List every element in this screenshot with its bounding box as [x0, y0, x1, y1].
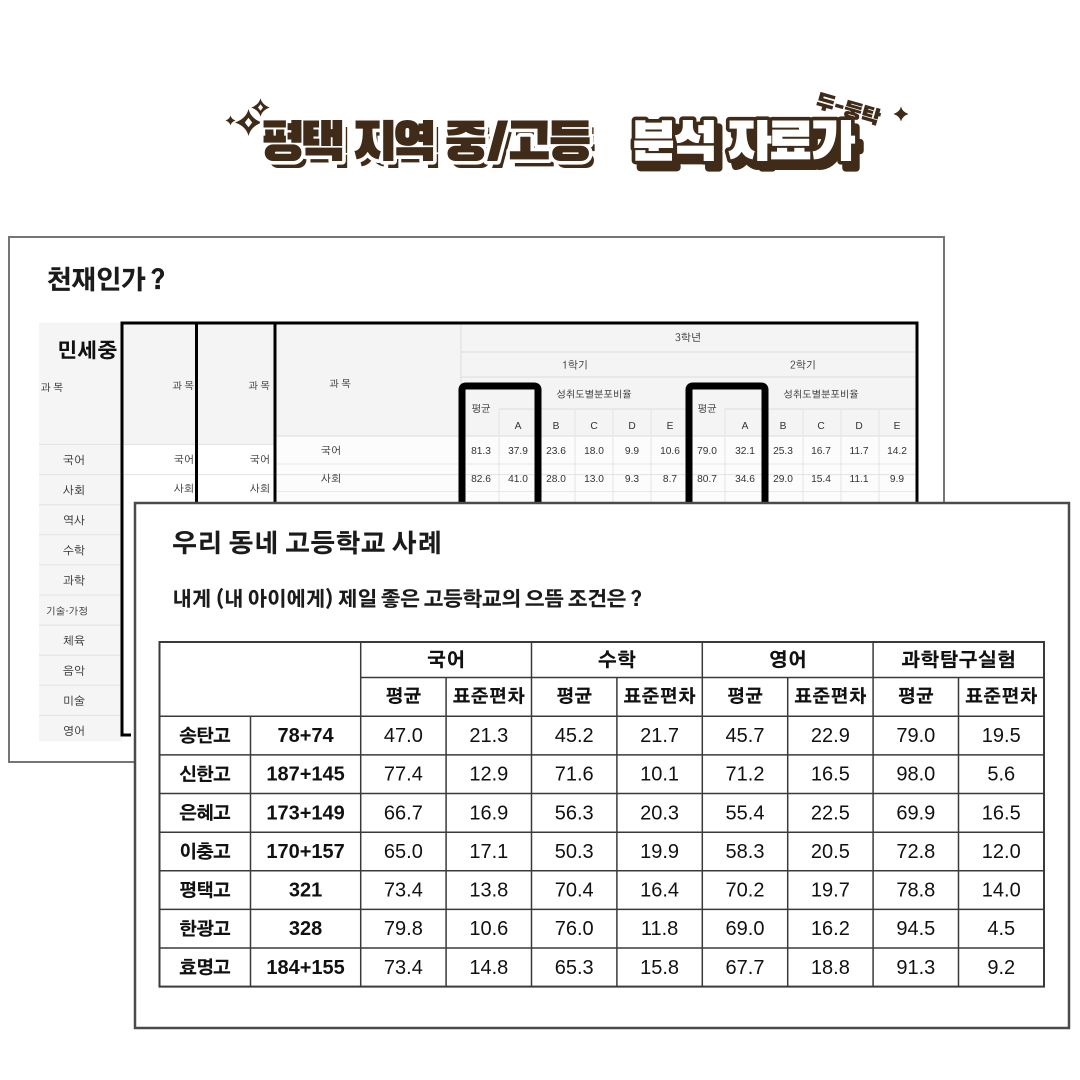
svg-text:50.3: 50.3 — [555, 841, 594, 863]
svg-text:16.9: 16.9 — [469, 802, 508, 824]
svg-text:C: C — [817, 421, 824, 432]
svg-text:9.2: 9.2 — [987, 957, 1015, 979]
svg-text:9.9: 9.9 — [890, 474, 904, 485]
svg-text:187+145: 187+145 — [266, 764, 344, 786]
svg-text:D: D — [855, 421, 862, 432]
svg-text:91.3: 91.3 — [896, 957, 935, 979]
svg-text:22.5: 22.5 — [811, 802, 850, 824]
svg-text:66.7: 66.7 — [384, 802, 423, 824]
svg-text:15.8: 15.8 — [640, 957, 679, 979]
svg-text:21.3: 21.3 — [469, 725, 508, 747]
svg-text:18.8: 18.8 — [811, 957, 850, 979]
svg-text:23.6: 23.6 — [546, 446, 566, 457]
svg-text:B: B — [553, 421, 560, 432]
svg-text:17.1: 17.1 — [469, 841, 508, 863]
svg-text:16.7: 16.7 — [811, 446, 831, 457]
svg-text:71.6: 71.6 — [555, 764, 594, 786]
svg-text:82.6: 82.6 — [471, 474, 491, 485]
svg-text:14.0: 14.0 — [982, 880, 1021, 902]
svg-text:15.4: 15.4 — [811, 474, 831, 485]
svg-text:170+157: 170+157 — [266, 841, 344, 863]
svg-text:328: 328 — [289, 918, 322, 940]
svg-text:12.9: 12.9 — [469, 764, 508, 786]
svg-text:98.0: 98.0 — [896, 764, 935, 786]
svg-text:78.8: 78.8 — [896, 880, 935, 902]
svg-text:73.4: 73.4 — [384, 880, 423, 902]
svg-text:16.5: 16.5 — [982, 802, 1021, 824]
svg-text:19.5: 19.5 — [982, 725, 1021, 747]
svg-text:9.3: 9.3 — [625, 474, 639, 485]
svg-text:70.2: 70.2 — [726, 880, 765, 902]
svg-text:16.5: 16.5 — [811, 764, 850, 786]
svg-text:E: E — [667, 421, 674, 432]
svg-text:45.2: 45.2 — [555, 725, 594, 747]
svg-text:321: 321 — [289, 880, 322, 902]
svg-text:80.7: 80.7 — [697, 474, 717, 485]
svg-text:29.0: 29.0 — [773, 474, 793, 485]
svg-text:37.9: 37.9 — [508, 446, 528, 457]
svg-text:55.4: 55.4 — [726, 802, 765, 824]
svg-text:79.0: 79.0 — [896, 725, 935, 747]
svg-text:E: E — [894, 421, 901, 432]
svg-text:A: A — [515, 421, 522, 432]
svg-text:C: C — [590, 421, 597, 432]
svg-text:56.3: 56.3 — [555, 802, 594, 824]
svg-text:78+74: 78+74 — [278, 725, 335, 747]
svg-text:173+149: 173+149 — [266, 802, 344, 824]
svg-text:11.7: 11.7 — [849, 446, 868, 457]
svg-text:41.0: 41.0 — [508, 474, 528, 485]
svg-text:4.5: 4.5 — [987, 918, 1015, 940]
svg-text:32.1: 32.1 — [735, 446, 755, 457]
svg-text:21.7: 21.7 — [640, 725, 679, 747]
svg-text:45.7: 45.7 — [726, 725, 765, 747]
svg-text:D: D — [628, 421, 635, 432]
svg-text:10.6: 10.6 — [660, 446, 680, 457]
svg-text:10.1: 10.1 — [640, 764, 679, 786]
svg-text:11.8: 11.8 — [641, 918, 678, 940]
svg-text:69.9: 69.9 — [896, 802, 935, 824]
svg-text:79.0: 79.0 — [697, 446, 717, 457]
svg-text:14.8: 14.8 — [469, 957, 508, 979]
svg-text:22.9: 22.9 — [811, 725, 850, 747]
svg-text:58.3: 58.3 — [726, 841, 765, 863]
svg-text:13.0: 13.0 — [584, 474, 604, 485]
svg-text:B: B — [780, 421, 787, 432]
svg-text:184+155: 184+155 — [266, 957, 344, 979]
svg-text:69.0: 69.0 — [726, 918, 765, 940]
svg-text:20.3: 20.3 — [640, 802, 679, 824]
svg-text:34.6: 34.6 — [735, 474, 755, 485]
svg-text:19.7: 19.7 — [811, 880, 850, 902]
svg-text:67.7: 67.7 — [726, 957, 765, 979]
svg-text:65.0: 65.0 — [384, 841, 423, 863]
svg-text:77.4: 77.4 — [384, 764, 423, 786]
svg-text:20.5: 20.5 — [811, 841, 850, 863]
svg-text:94.5: 94.5 — [896, 918, 935, 940]
svg-text:25.3: 25.3 — [773, 446, 793, 457]
svg-text:73.4: 73.4 — [384, 957, 423, 979]
svg-text:12.0: 12.0 — [982, 841, 1021, 863]
svg-text:81.3: 81.3 — [471, 446, 491, 457]
svg-text:8.7: 8.7 — [663, 474, 677, 485]
svg-text:79.8: 79.8 — [384, 918, 423, 940]
svg-text:47.0: 47.0 — [384, 725, 423, 747]
svg-text:A: A — [742, 421, 749, 432]
svg-text:16.4: 16.4 — [640, 880, 679, 902]
svg-text:9.9: 9.9 — [625, 446, 639, 457]
svg-text:13.8: 13.8 — [469, 880, 508, 902]
svg-text:65.3: 65.3 — [555, 957, 594, 979]
svg-text:11.1: 11.1 — [849, 474, 868, 485]
svg-text:19.9: 19.9 — [640, 841, 679, 863]
svg-text:72.8: 72.8 — [896, 841, 935, 863]
svg-text:5.6: 5.6 — [987, 764, 1015, 786]
svg-text:76.0: 76.0 — [555, 918, 594, 940]
svg-text:10.6: 10.6 — [469, 918, 508, 940]
svg-text:16.2: 16.2 — [811, 918, 850, 940]
svg-text:71.2: 71.2 — [726, 764, 765, 786]
svg-text:28.0: 28.0 — [546, 474, 566, 485]
svg-text:18.0: 18.0 — [584, 446, 604, 457]
svg-text:14.2: 14.2 — [887, 446, 907, 457]
svg-text:70.4: 70.4 — [555, 880, 594, 902]
